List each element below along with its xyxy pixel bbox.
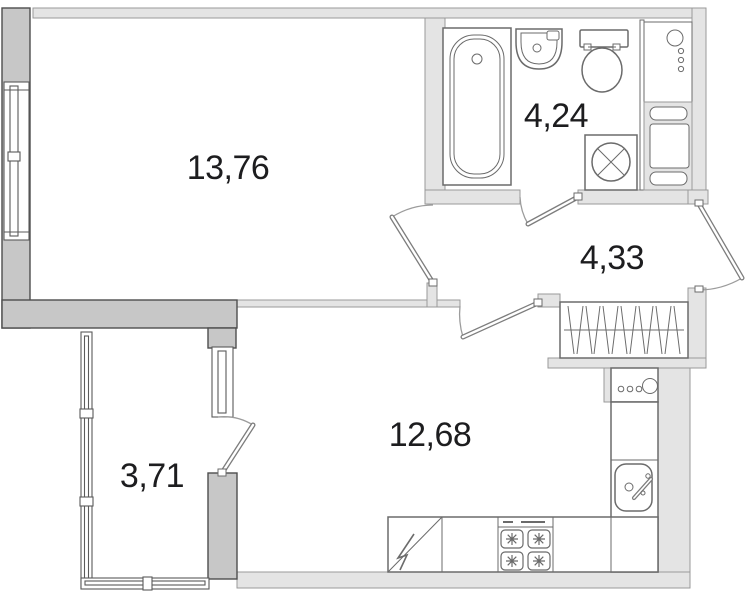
interior-walls <box>33 8 708 588</box>
washing-machine-icon <box>585 135 637 190</box>
hallway-area-label: 4,33 <box>580 239 644 277</box>
top-wall <box>33 8 692 18</box>
bathroom-area-label: 4,24 <box>524 97 588 135</box>
bathroom-door-icon <box>520 193 582 224</box>
kitchen-panel-stub <box>604 368 611 402</box>
shaft-duct-top <box>650 107 687 120</box>
floor-plan: 13,76 4,24 4,33 12,68 3,71 <box>0 0 750 600</box>
kitchen-east-wall <box>658 368 690 588</box>
living-balcony-wall <box>2 300 237 328</box>
living-room-area-label: 13,76 <box>187 149 270 187</box>
kitchen-door-icon <box>460 299 542 337</box>
room-labels: 13,76 4,24 4,33 12,68 3,71 <box>120 97 644 495</box>
balcony-glazing-left-icon <box>80 332 93 588</box>
wardrobe-south-band <box>548 358 706 368</box>
balcony-door-lower-block <box>208 473 237 579</box>
shaft-duct-middle <box>650 124 689 168</box>
bathroom-south-wall-left <box>425 190 520 204</box>
living-room-door-icon <box>392 205 437 286</box>
balcony-door-window-icon <box>212 347 233 417</box>
entrance-door-icon <box>695 200 742 292</box>
bathroom-west-wall <box>425 18 445 204</box>
bathtub-icon <box>443 28 511 185</box>
balcony-door-icon <box>218 417 253 476</box>
toilet-icon <box>580 30 628 92</box>
balcony-door-upper-block <box>208 328 236 348</box>
living-room-window-icon <box>4 82 29 240</box>
shaft-duct-bottom <box>650 172 687 185</box>
kitchen-panel-icon <box>611 368 658 402</box>
living-door-stub <box>427 283 437 307</box>
balcony-area-label: 3,71 <box>120 457 184 495</box>
kitchen-fixtures <box>388 368 658 572</box>
balcony-glazing-bottom-icon <box>81 577 209 590</box>
wardrobe-icon <box>560 302 688 358</box>
bathroom-south-wall-right <box>578 190 692 204</box>
washbasin-icon <box>516 29 562 69</box>
floor-plan-page: 13,76 4,24 4,33 12,68 3,71 <box>0 0 750 600</box>
riser-pipes-icon <box>644 22 692 102</box>
bathroom-shaft-divider <box>640 20 644 190</box>
right-wall <box>692 8 706 204</box>
entrance-bottom-jamb <box>688 288 706 368</box>
kitchen-area-label: 12,68 <box>389 416 472 454</box>
utility-shaft-icon <box>644 22 692 190</box>
bottom-wall <box>237 572 690 588</box>
